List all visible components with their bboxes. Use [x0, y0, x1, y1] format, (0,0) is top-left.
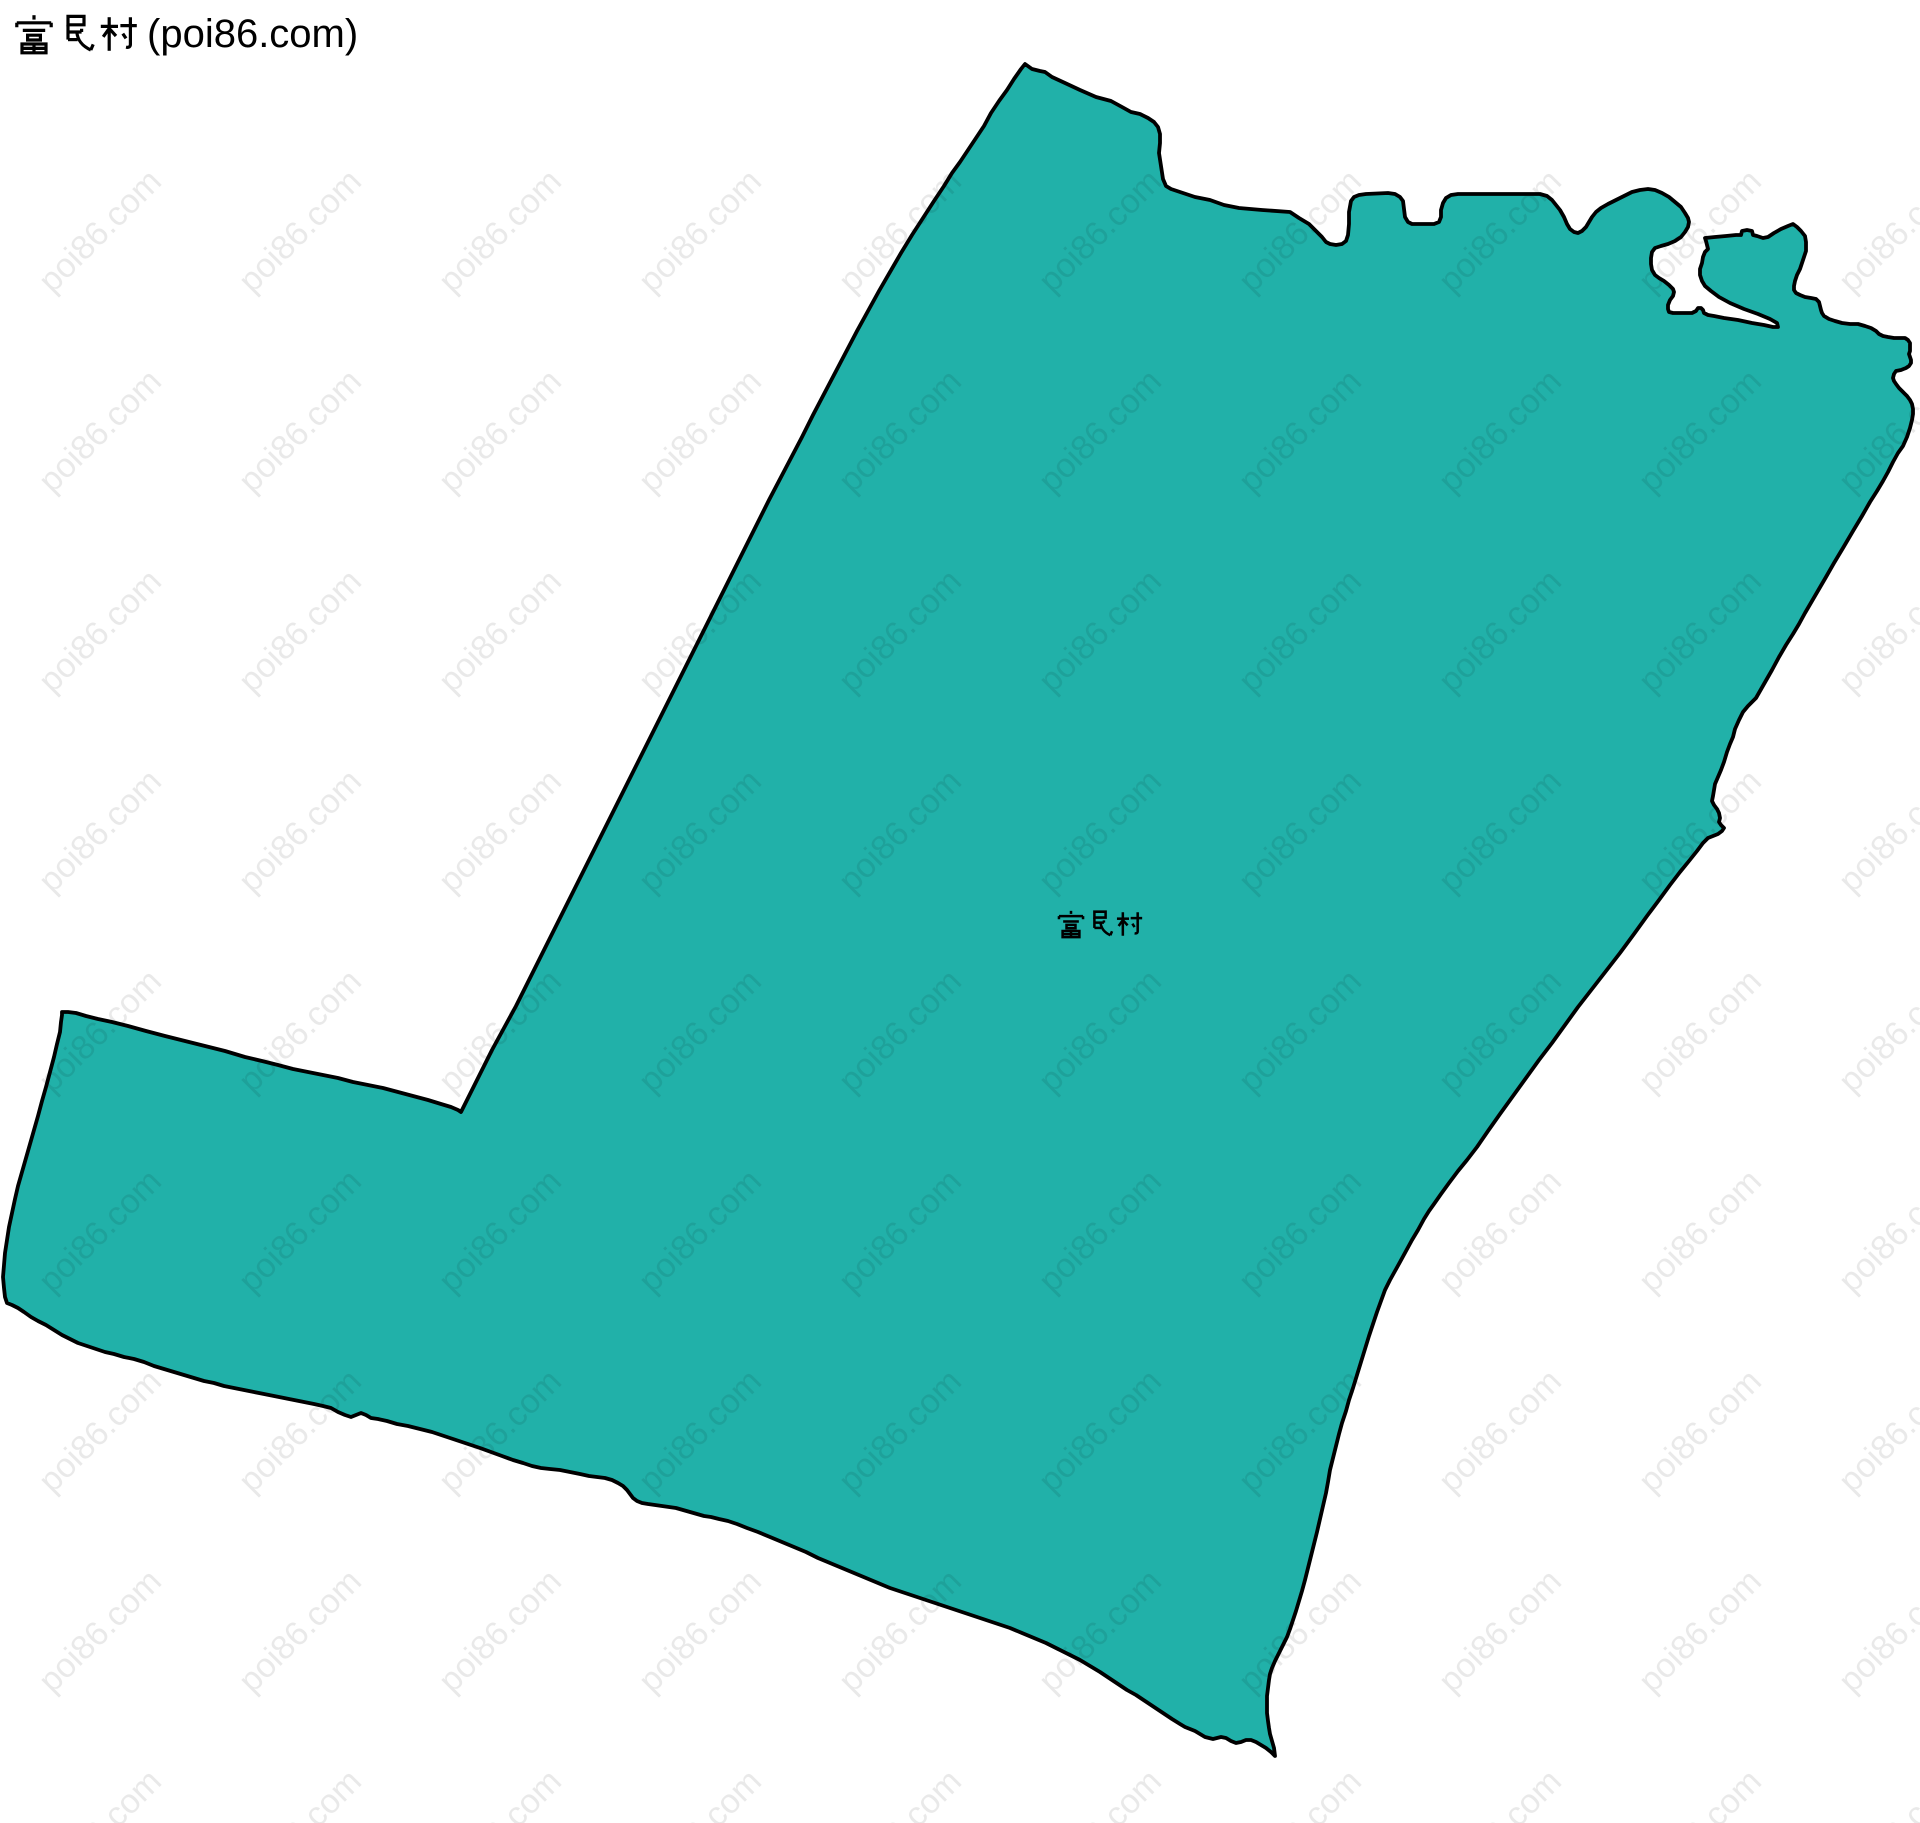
svg-text:poi86.com: poi86.com	[431, 1562, 569, 1700]
svg-text:poi86.com: poi86.com	[631, 162, 769, 300]
svg-text:poi86.com: poi86.com	[1431, 1162, 1569, 1300]
svg-text:poi86.com: poi86.com	[431, 562, 569, 700]
svg-text:poi86.com: poi86.com	[1431, 1762, 1569, 1823]
svg-text:poi86.com: poi86.com	[31, 562, 169, 700]
svg-text:poi86.com: poi86.com	[231, 362, 369, 500]
svg-text:poi86.com: poi86.com	[431, 162, 569, 300]
svg-text:poi86.com: poi86.com	[1831, 962, 1920, 1100]
svg-text:poi86.com: poi86.com	[831, 1762, 969, 1823]
svg-text:poi86.com: poi86.com	[431, 362, 569, 500]
svg-text:poi86.com: poi86.com	[1831, 562, 1920, 700]
svg-text:poi86.com: poi86.com	[31, 162, 169, 300]
svg-text:poi86.com: poi86.com	[631, 1762, 769, 1823]
svg-text:poi86.com: poi86.com	[1631, 962, 1769, 1100]
svg-text:poi86.com: poi86.com	[1831, 1762, 1920, 1823]
svg-text:poi86.com: poi86.com	[1231, 1762, 1369, 1823]
svg-text:(poi86.com): (poi86.com)	[147, 12, 358, 56]
svg-text:poi86.com: poi86.com	[431, 762, 569, 900]
svg-text:poi86.com: poi86.com	[231, 762, 369, 900]
svg-text:poi86.com: poi86.com	[231, 562, 369, 700]
svg-text:poi86.com: poi86.com	[1831, 762, 1920, 900]
svg-text:poi86.com: poi86.com	[31, 762, 169, 900]
svg-text:poi86.com: poi86.com	[231, 1762, 369, 1823]
svg-text:poi86.com: poi86.com	[1631, 1162, 1769, 1300]
svg-text:poi86.com: poi86.com	[1831, 1162, 1920, 1300]
svg-text:poi86.com: poi86.com	[631, 362, 769, 500]
svg-text:poi86.com: poi86.com	[1631, 1762, 1769, 1823]
svg-text:poi86.com: poi86.com	[1831, 1362, 1920, 1500]
svg-text:poi86.com: poi86.com	[31, 1762, 169, 1823]
svg-text:poi86.com: poi86.com	[1031, 1762, 1169, 1823]
svg-text:poi86.com: poi86.com	[31, 1562, 169, 1700]
svg-text:poi86.com: poi86.com	[231, 1562, 369, 1700]
svg-text:poi86.com: poi86.com	[1831, 162, 1920, 300]
svg-text:poi86.com: poi86.com	[1631, 1562, 1769, 1700]
svg-text:poi86.com: poi86.com	[431, 1762, 569, 1823]
svg-text:poi86.com: poi86.com	[1431, 1562, 1569, 1700]
svg-text:poi86.com: poi86.com	[31, 1362, 169, 1500]
svg-text:poi86.com: poi86.com	[631, 1562, 769, 1700]
svg-text:poi86.com: poi86.com	[1831, 1562, 1920, 1700]
svg-text:poi86.com: poi86.com	[1431, 1362, 1569, 1500]
svg-text:poi86.com: poi86.com	[1631, 1362, 1769, 1500]
svg-text:poi86.com: poi86.com	[31, 362, 169, 500]
svg-text:poi86.com: poi86.com	[231, 162, 369, 300]
